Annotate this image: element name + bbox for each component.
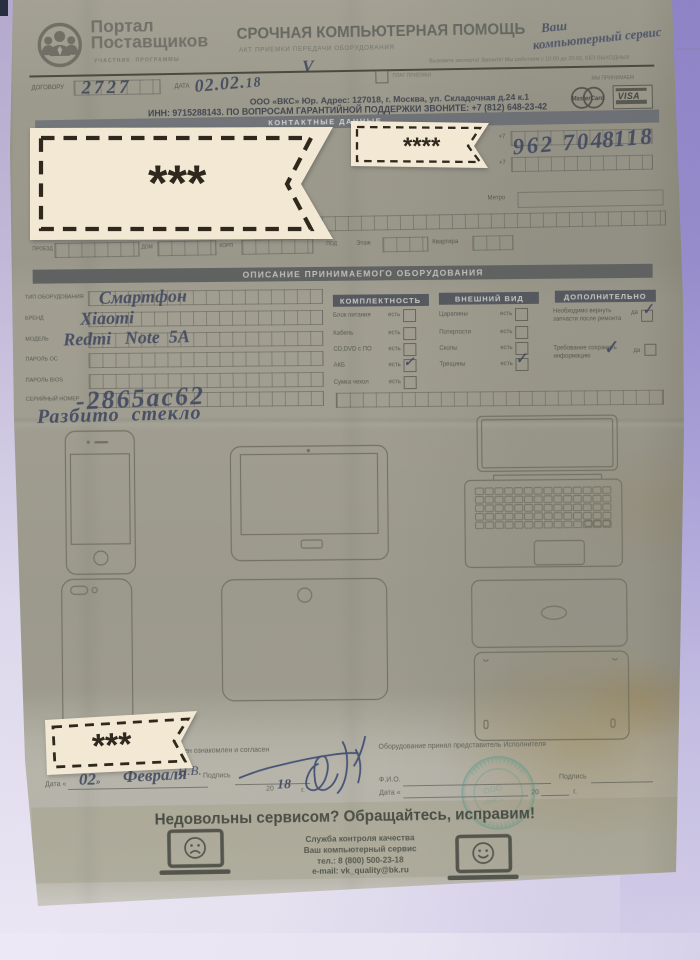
svg-text:ООО: ООО (483, 783, 503, 796)
svg-text:****: **** (403, 133, 441, 160)
svg-text:***: *** (91, 725, 134, 765)
svg-text:***: *** (148, 155, 207, 211)
